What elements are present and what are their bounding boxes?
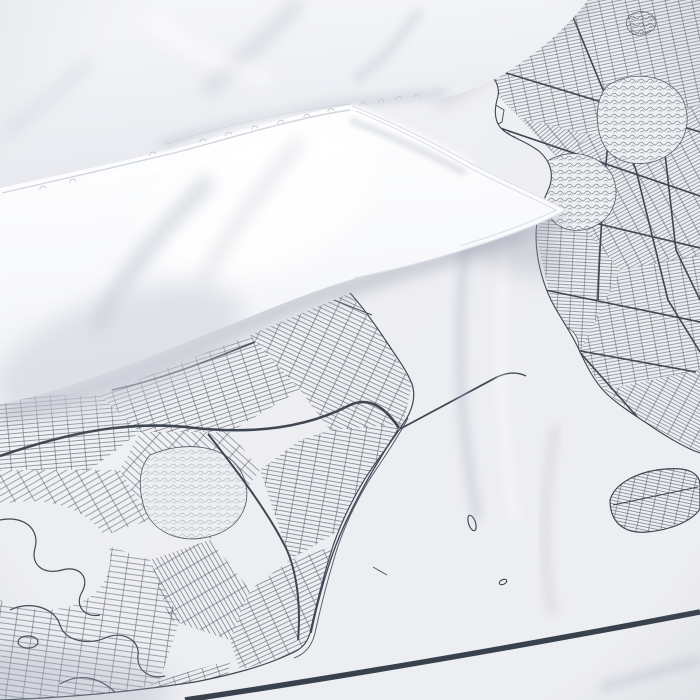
bedding-photo [0,0,700,700]
vignette-overlay [0,0,700,700]
photo-canvas [0,0,700,700]
